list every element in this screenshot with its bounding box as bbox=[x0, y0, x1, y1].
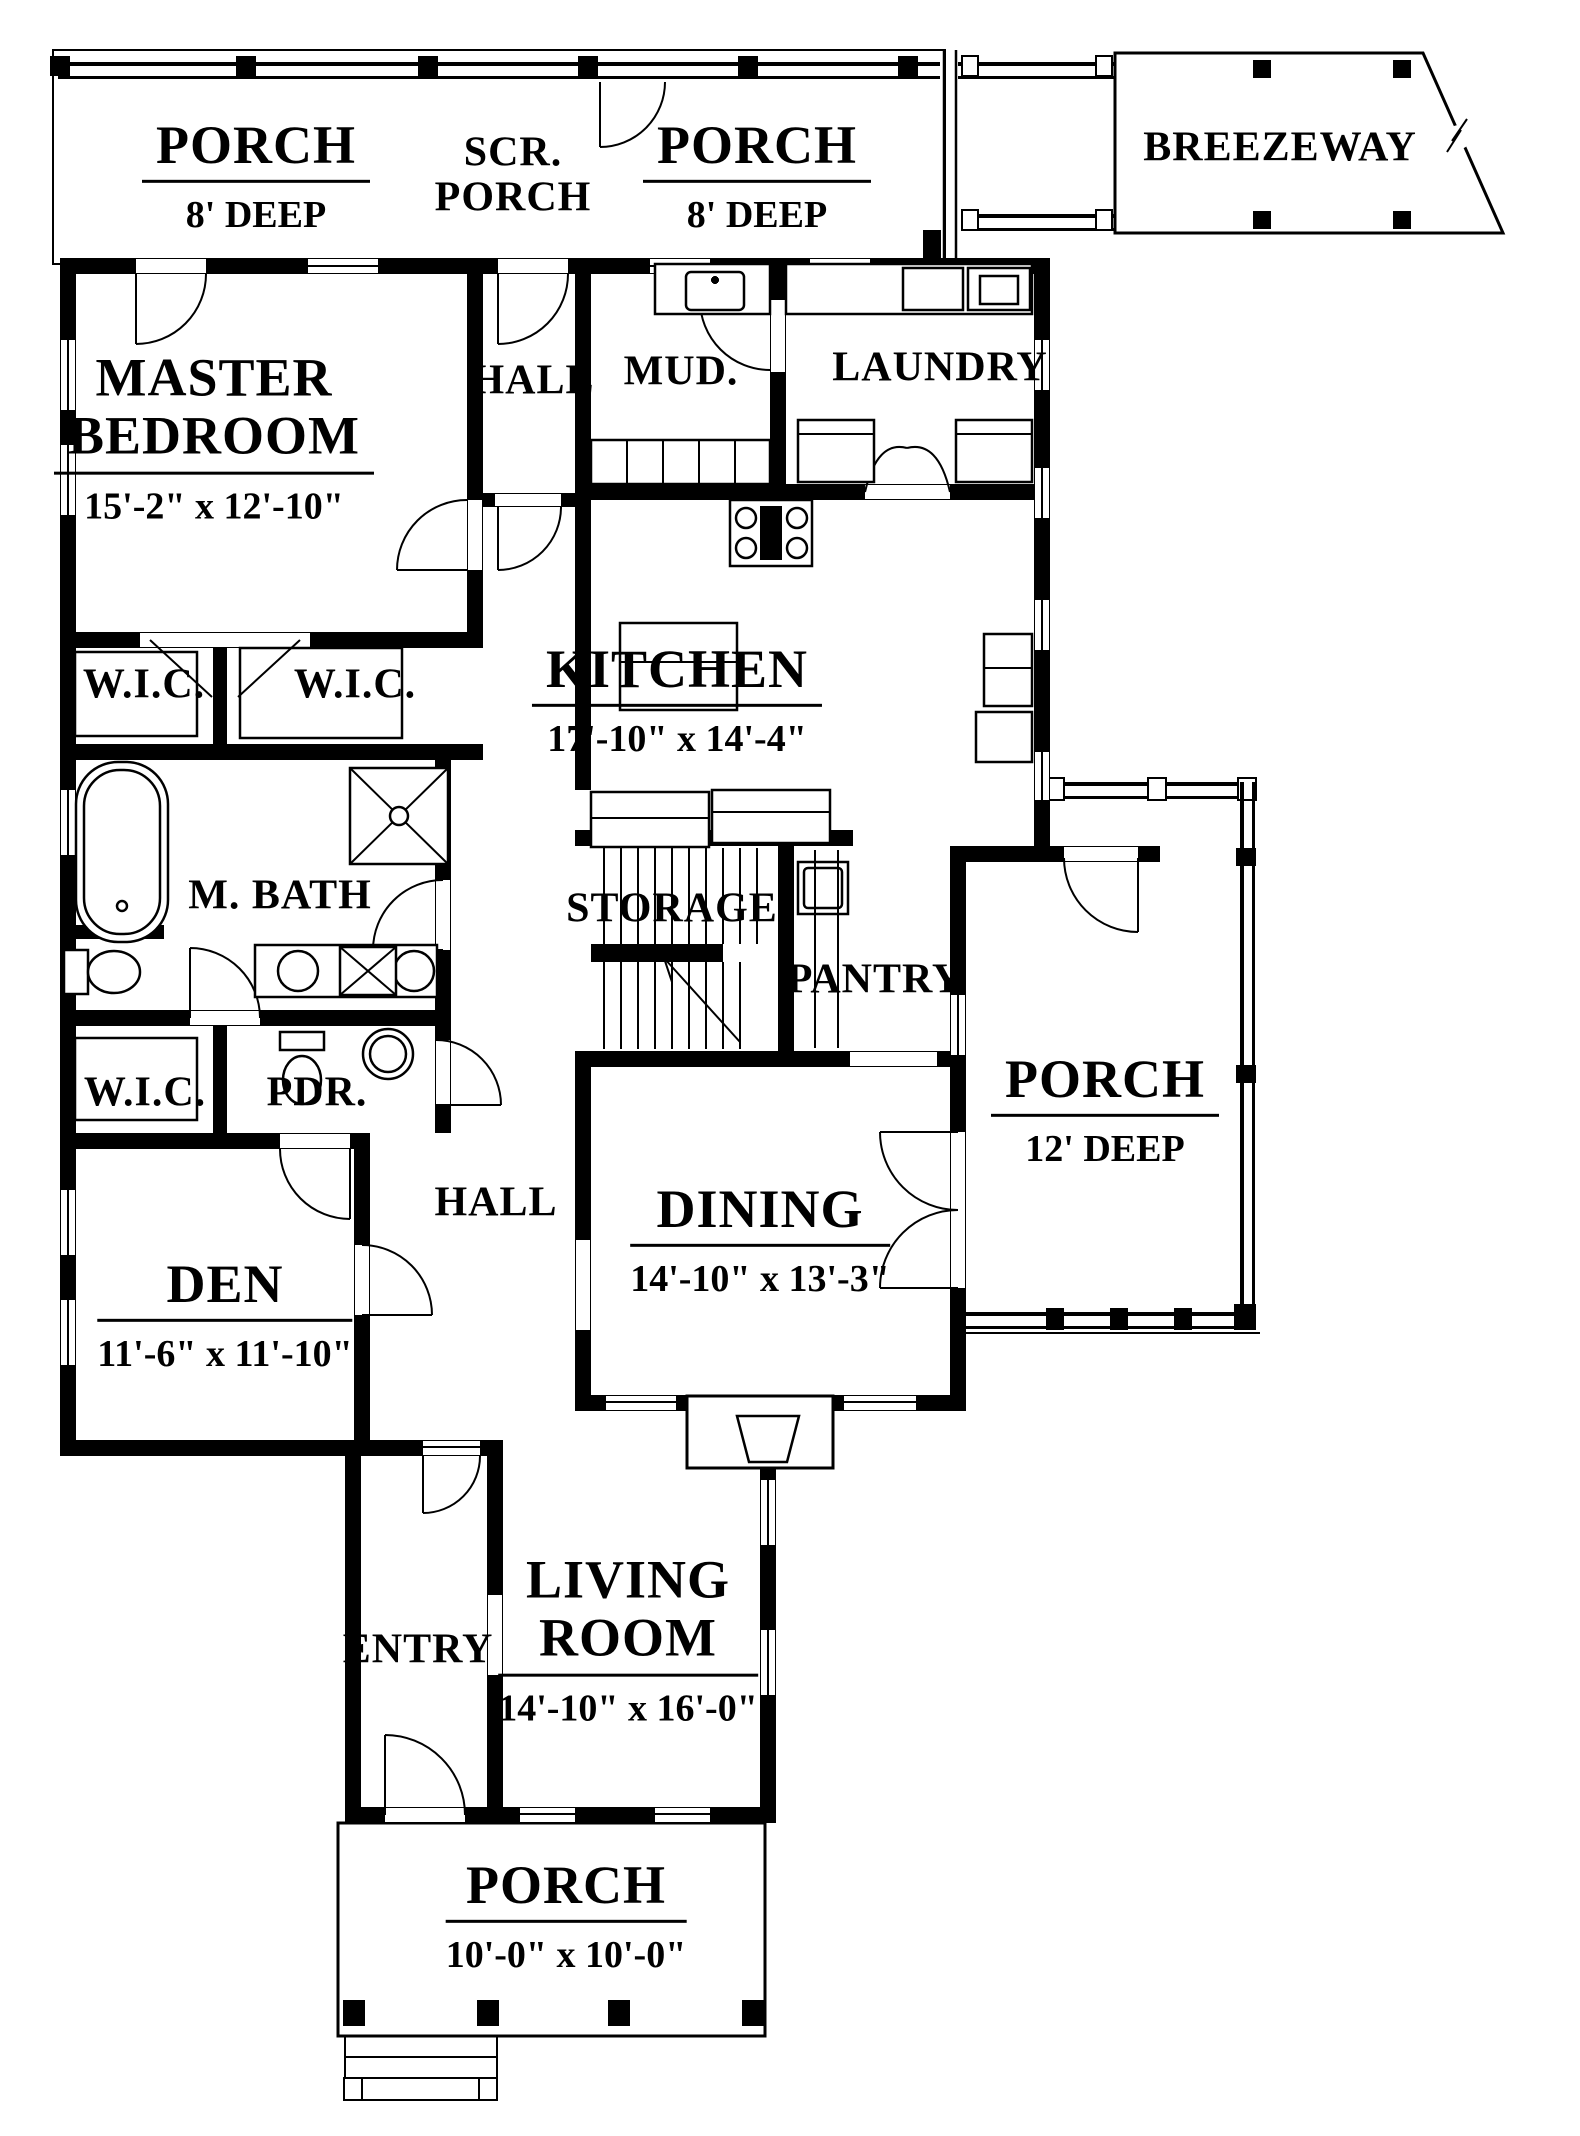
room-label-entry: ENTRY bbox=[343, 1627, 494, 1672]
master-hall-door bbox=[397, 500, 467, 570]
room-label-storage: STORAGE bbox=[566, 886, 778, 931]
room-label-pantry: PANTRY bbox=[787, 957, 963, 1002]
room-label-master-bedroom: MASTER BEDROOM 15'-2" x 12'-10" bbox=[54, 349, 374, 528]
porch-entry-door bbox=[1064, 858, 1138, 932]
kitchen-cabinet bbox=[976, 712, 1032, 762]
front-door bbox=[385, 1735, 465, 1815]
room-label-porch-top-left: PORCH 8' DEEP bbox=[142, 116, 370, 236]
room-label-mud: MUD. bbox=[624, 349, 739, 394]
hall-entry-door bbox=[423, 1456, 480, 1513]
room-label-master-bath: M. BATH bbox=[188, 873, 372, 918]
room-label-dining: DINING 14'-10" x 13'-3" bbox=[630, 1180, 890, 1300]
room-label-hall-upper: HALL bbox=[471, 358, 594, 403]
room-label-kitchen: KITCHEN 17'-10" x 14'-4" bbox=[532, 640, 822, 760]
den-door bbox=[280, 1149, 350, 1219]
dining-porch-door-lower bbox=[880, 1210, 958, 1288]
room-label-porch-right: PORCH 12' DEEP bbox=[991, 1050, 1219, 1170]
vanity-double-sink bbox=[255, 945, 437, 997]
room-label-wic-left: W.I.C. bbox=[83, 662, 205, 707]
mud-bench-cubbies bbox=[591, 440, 770, 484]
room-label-living-room: LIVING ROOM 14'-10" x 16'-0" bbox=[498, 1551, 758, 1730]
dining-porch-door-upper bbox=[880, 1132, 958, 1210]
shower-icon bbox=[350, 768, 448, 864]
bath-lower-door bbox=[190, 948, 260, 1018]
fireplace-icon bbox=[687, 1396, 833, 1468]
room-label-den: DEN 11'-6" x 11'-10" bbox=[97, 1255, 352, 1375]
washer-icon bbox=[798, 420, 874, 482]
room-label-laundry: LAUNDRY bbox=[832, 345, 1048, 390]
hall-corridor-door bbox=[498, 507, 561, 570]
room-label-powder-room: PDR. bbox=[267, 1070, 368, 1115]
laundry-counter bbox=[786, 264, 1032, 314]
front-steps bbox=[344, 2036, 497, 2100]
range-icon bbox=[730, 500, 812, 566]
floorplan-drawing bbox=[0, 0, 1580, 2136]
master-bath-door bbox=[373, 880, 443, 950]
room-label-hall-lower: HALL bbox=[434, 1180, 557, 1225]
room-label-wic-right: W.I.C. bbox=[294, 662, 416, 707]
refrigerator-icon bbox=[984, 634, 1032, 706]
room-label-porch-bottom: PORCH 10'-0" x 10'-0" bbox=[446, 1856, 687, 1976]
mud-sink-counter bbox=[655, 264, 770, 314]
room-label-screened-porch: SCR. PORCH bbox=[435, 131, 592, 222]
bathtub-icon bbox=[76, 762, 168, 942]
room-label-porch-top-right: PORCH 8' DEEP bbox=[643, 116, 871, 236]
dryer-icon bbox=[956, 420, 1032, 482]
pantry-fixtures bbox=[798, 850, 848, 1048]
hall-porch-door bbox=[498, 274, 568, 344]
toilet-master-icon bbox=[64, 950, 140, 994]
floorplan-canvas: PORCH 8' DEEP SCR. PORCH PORCH 8' DEEP B… bbox=[0, 0, 1580, 2136]
room-label-wic-den: W.I.C. bbox=[84, 1070, 206, 1115]
breezeway-walkway bbox=[944, 50, 1115, 264]
den-hall-door bbox=[362, 1245, 432, 1315]
stairs-icon bbox=[591, 848, 757, 1049]
master-porch-door bbox=[136, 274, 206, 344]
room-label-breezeway: BREEZEWAY bbox=[1143, 125, 1417, 170]
